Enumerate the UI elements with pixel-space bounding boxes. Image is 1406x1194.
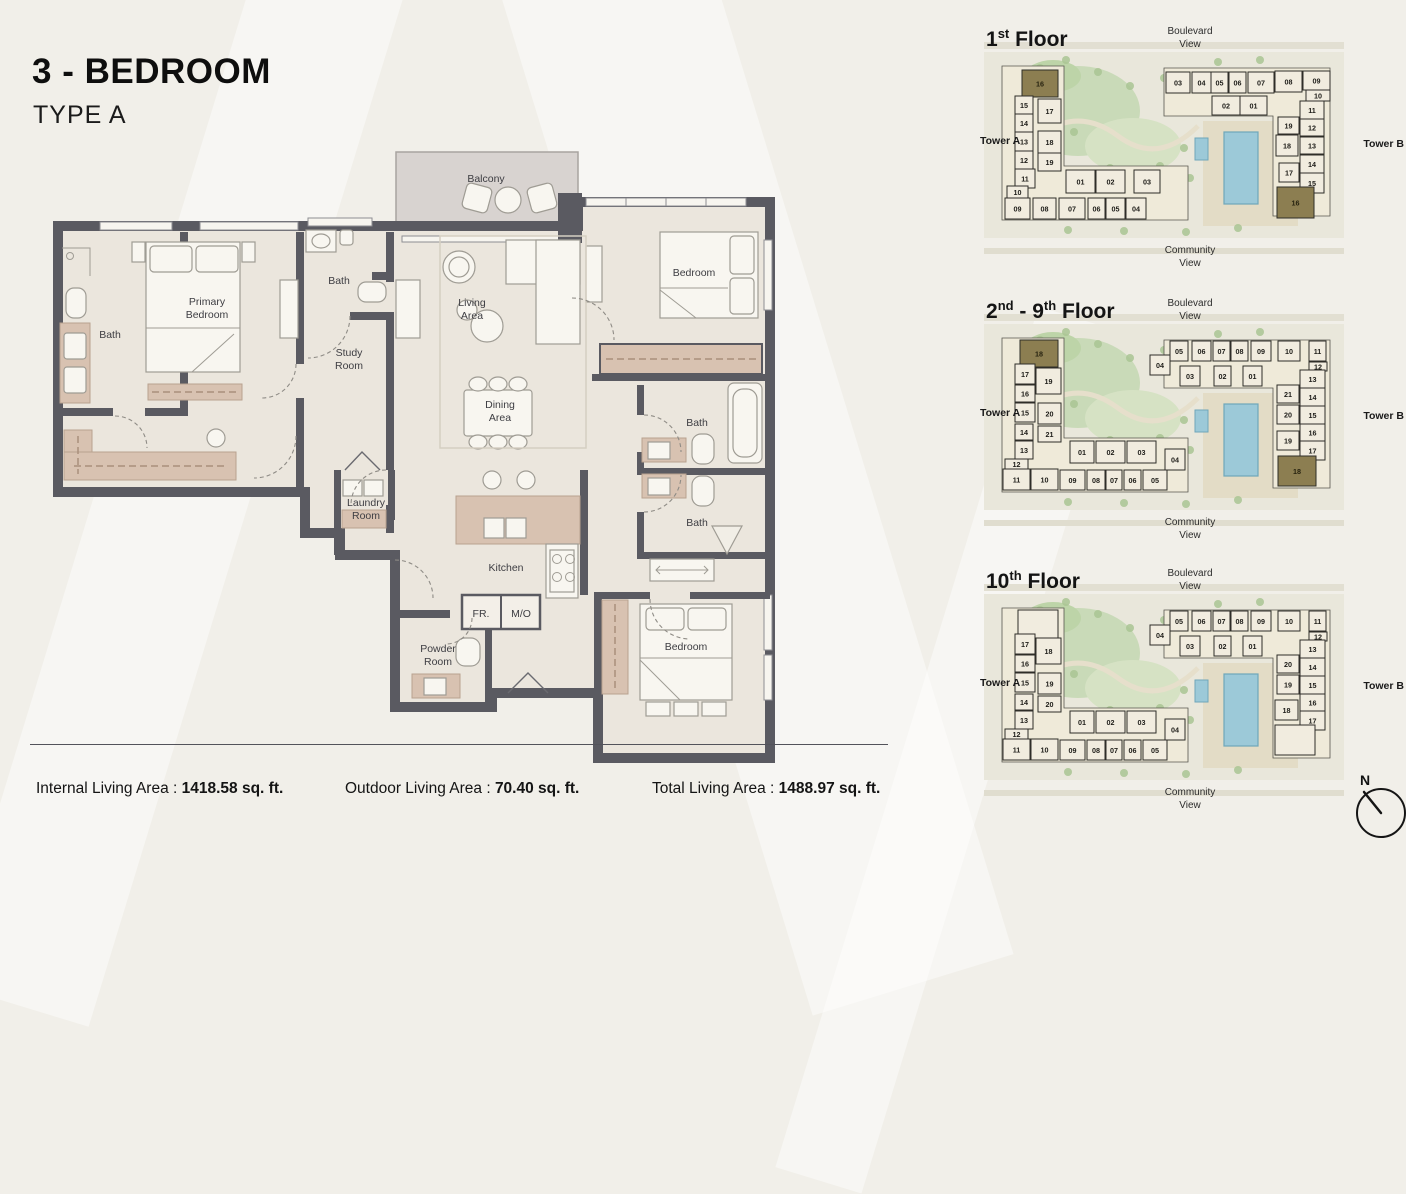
unit-number: 20: [1284, 660, 1292, 669]
room-label-laundry-room: LaundryRoom: [347, 497, 386, 522]
unit-number: 14: [1020, 428, 1028, 437]
stat-value: 1418.58 sq. ft.: [182, 780, 284, 797]
unit-number: 12: [1020, 156, 1028, 165]
unit-number: 01: [1249, 642, 1257, 651]
toilet-icon: [456, 638, 480, 666]
toilet-icon: [66, 288, 86, 318]
unit-number: 09: [1313, 76, 1321, 85]
unit-number: 13: [1308, 141, 1316, 150]
unit-number: 19: [1284, 436, 1292, 445]
unit-number: 06: [1129, 476, 1137, 485]
stat-label: Outdoor Living Area: [345, 780, 482, 797]
divider-line: [30, 744, 888, 745]
unit-number: 03: [1138, 718, 1146, 727]
unit-number: 09: [1257, 617, 1265, 626]
unit-number: 05: [1112, 204, 1120, 213]
unit-number: 16: [1292, 198, 1300, 207]
unit-number: 05: [1151, 476, 1159, 485]
unit-number: 08: [1236, 347, 1244, 356]
unit-number: 11: [1308, 106, 1316, 115]
unit-number: 14: [1309, 663, 1317, 672]
tower-a-label: Tower A: [980, 677, 1021, 689]
unit-number: 07: [1110, 746, 1118, 755]
floor-plan-svg: BathPrimaryBedroomBathStudyRoomBalconyLi…: [40, 140, 900, 765]
unit-number: 01: [1250, 101, 1258, 110]
unit-number: 09: [1014, 204, 1022, 213]
unit-number: 11: [1013, 475, 1021, 484]
unit-number: 04: [1156, 631, 1164, 640]
unit-number: 08: [1236, 617, 1244, 626]
unit-number: 18: [1046, 138, 1054, 147]
unit-number: 03: [1186, 642, 1194, 651]
unit-number: 18: [1283, 141, 1291, 150]
unit-number: 02: [1222, 101, 1230, 110]
unit-number: 09: [1069, 746, 1077, 755]
room-label-bath-lower: Bath: [686, 517, 708, 529]
unit-number: 01: [1249, 372, 1257, 381]
unit-number: 19: [1285, 121, 1293, 130]
room-label-bedroom-top: Bedroom: [673, 267, 716, 279]
unit-number: 10: [1041, 745, 1049, 754]
room-label-study-room: StudyRoom: [335, 347, 363, 372]
unit-number: 20: [1046, 409, 1054, 418]
stat-label: Total Living Area: [652, 780, 766, 797]
room-label-bath-upper: Bath: [686, 417, 708, 429]
stat-value: 70.40 sq. ft.: [495, 780, 579, 797]
unit-number: 11: [1314, 347, 1322, 356]
room-label-fr: FR.: [473, 608, 490, 620]
unit-number: 12: [1308, 123, 1316, 132]
key-plan-svg: 1615141312111718191009080706050401020303…: [978, 16, 1406, 282]
key-plan-svg: 1817161514131920211211100908070605040102…: [978, 288, 1406, 554]
unit-number: 19: [1045, 377, 1053, 386]
unit-number: 18: [1035, 349, 1043, 358]
unit-number: 12: [1013, 730, 1021, 739]
room-label-kitchen: Kitchen: [488, 562, 523, 574]
room-label-powder-room: PowderRoom: [420, 643, 456, 668]
key-plan-title: 10th Floor: [986, 568, 1080, 593]
unit-number: 14: [1020, 698, 1028, 707]
unit-number: 19: [1046, 158, 1054, 167]
unit-number: 02: [1219, 642, 1227, 651]
unit-number: 17: [1046, 107, 1054, 116]
unit-number: 10: [1041, 475, 1049, 484]
room-label-dining-area: DiningArea: [485, 399, 515, 424]
unit-number: 15: [1021, 408, 1029, 417]
unit-number: 07: [1068, 204, 1076, 213]
room-label-bedroom-bottom: Bedroom: [665, 641, 708, 653]
tower-a-label: Tower A: [980, 135, 1021, 147]
unit-number: 13: [1020, 137, 1028, 146]
unit-number: 11: [1013, 745, 1021, 754]
unit-number: 14: [1020, 119, 1028, 128]
unit-number: 15: [1308, 179, 1316, 188]
unit-number: 16: [1036, 79, 1044, 88]
tower-b-label: Tower B: [1363, 138, 1404, 150]
pouf-icon: [207, 429, 225, 447]
unit-number: 15: [1309, 411, 1317, 420]
unit-number: 03: [1174, 78, 1182, 87]
unit-number: 01: [1078, 718, 1086, 727]
unit-number: 11: [1314, 617, 1322, 626]
page-title: 3 - BEDROOM: [32, 52, 271, 92]
unit-number: 21: [1046, 430, 1054, 439]
unit-number: 04: [1171, 725, 1179, 734]
compass-north-label: N: [1360, 772, 1370, 788]
compass-needle-icon: [1364, 792, 1381, 813]
unit-number: 08: [1092, 476, 1100, 485]
unit-number: 18: [1283, 706, 1291, 715]
room-label-mo: M/O: [511, 608, 531, 620]
unit-number: 07: [1218, 347, 1226, 356]
unit-number: 17: [1285, 168, 1293, 177]
room-label-balcony: Balcony: [467, 173, 505, 185]
stat-label: Internal Living Area: [36, 780, 169, 797]
unit-number: 20: [1046, 700, 1054, 709]
unit-number: 02: [1219, 372, 1227, 381]
stat-value: 1488.97 sq. ft.: [779, 780, 881, 797]
compass: N: [1350, 766, 1406, 840]
unit-number: 10: [1285, 347, 1293, 356]
unit-number: 03: [1143, 177, 1151, 186]
unit-number: 08: [1092, 746, 1100, 755]
balcony-table-icon: [495, 187, 521, 213]
unit-number: 10: [1314, 91, 1322, 100]
unit-number: 01: [1077, 177, 1085, 186]
unit-number: 17: [1021, 640, 1029, 649]
unit-number: 05: [1151, 746, 1159, 755]
toilet-icon: [692, 476, 714, 506]
floor-plan: BathPrimaryBedroomBathStudyRoomBalconyLi…: [40, 140, 900, 765]
room-label-bath-middle: Bath: [328, 275, 350, 287]
unit-number: 04: [1171, 455, 1179, 464]
unit-number: 06: [1234, 78, 1242, 87]
unit-number: 15: [1020, 101, 1028, 110]
unit-number: 15: [1021, 678, 1029, 687]
unit-number: 04: [1156, 361, 1164, 370]
unit-number: 05: [1175, 617, 1183, 626]
key-plan-svg: 1716151413181920121110090807060504010203…: [978, 558, 1406, 824]
unit-number: 03: [1138, 448, 1146, 457]
unit-number: 01: [1078, 448, 1086, 457]
balcony-area: [396, 152, 578, 230]
unit-number: 07: [1218, 617, 1226, 626]
unit-number: 14: [1308, 160, 1316, 169]
unit-number: 16: [1309, 698, 1317, 707]
unit-number: 06: [1129, 746, 1137, 755]
unit-number: 07: [1257, 78, 1265, 87]
unit-number: 14: [1309, 393, 1317, 402]
unit-number: 09: [1069, 476, 1077, 485]
unit-number: 13: [1020, 446, 1028, 455]
unit-number: 02: [1107, 448, 1115, 457]
toilet-icon: [358, 282, 386, 302]
unit-number: 13: [1309, 645, 1317, 654]
unit-number: 08: [1285, 77, 1293, 86]
room-label-living-area: LivingArea: [458, 297, 486, 322]
room-label-bath-left: Bath: [99, 329, 121, 341]
unit-number: 13: [1020, 716, 1028, 725]
unit-number: 13: [1309, 375, 1317, 384]
room-label-primary-bedroom: PrimaryBedroom: [186, 296, 229, 321]
unit-number: 03: [1186, 372, 1194, 381]
unit-number: 18: [1045, 647, 1053, 656]
unit-number: 06: [1198, 347, 1206, 356]
unit-number: 04: [1132, 204, 1140, 213]
tower-b-label: Tower B: [1363, 680, 1404, 692]
unit-number: 05: [1175, 347, 1183, 356]
unit-number: 16: [1309, 428, 1317, 437]
tower-b-label: Tower B: [1363, 410, 1404, 422]
unit-number: 15: [1309, 681, 1317, 690]
unit-number: 16: [1021, 659, 1029, 668]
unit-number: 02: [1107, 177, 1115, 186]
unit-number: 10: [1285, 617, 1293, 626]
unit-number: 12: [1013, 460, 1021, 469]
key-plan-unit: [1275, 725, 1315, 755]
unit-number: 20: [1284, 410, 1292, 419]
unit-number: 11: [1021, 174, 1029, 183]
unit-number: 06: [1198, 617, 1206, 626]
key-plan-10th-floor: 1716151413181920121110090807060504010203…: [978, 558, 1406, 824]
community-view-label: CommunityView: [1165, 245, 1216, 269]
stat-total-area: Total Living Area : 1488.97 sq. ft.: [652, 780, 880, 798]
page-subtitle: TYPE A: [33, 101, 127, 130]
unit-number: 08: [1041, 204, 1049, 213]
tower-a-label: Tower A: [980, 407, 1021, 419]
unit-number: 18: [1293, 467, 1301, 476]
key-plan-1st-floor: 1615141312111718191009080706050401020303…: [978, 16, 1406, 282]
unit-number: 04: [1198, 78, 1206, 87]
toilet-icon: [692, 434, 714, 464]
unit-number: 05: [1216, 78, 1224, 87]
unit-number: 06: [1093, 204, 1101, 213]
unit-number: 21: [1284, 390, 1292, 399]
stat-outdoor-area: Outdoor Living Area : 70.40 sq. ft.: [345, 780, 579, 798]
community-view-label: CommunityView: [1165, 787, 1216, 811]
unit-number: 17: [1309, 716, 1317, 725]
unit-number: 19: [1046, 679, 1054, 688]
unit-number: 16: [1021, 389, 1029, 398]
stat-internal-area: Internal Living Area : 1418.58 sq. ft.: [36, 780, 283, 798]
unit-number: 07: [1110, 476, 1118, 485]
unit-number: 17: [1021, 370, 1029, 379]
key-plan-2nd-9th-floor: 1817161514131920211211100908070605040102…: [978, 288, 1406, 554]
unit-number: 10: [1014, 188, 1022, 197]
unit-number: 19: [1284, 680, 1292, 689]
unit-number: 02: [1107, 718, 1115, 727]
unit-number: 17: [1309, 446, 1317, 455]
community-view-label: CommunityView: [1165, 517, 1216, 541]
unit-number: 09: [1257, 347, 1265, 356]
